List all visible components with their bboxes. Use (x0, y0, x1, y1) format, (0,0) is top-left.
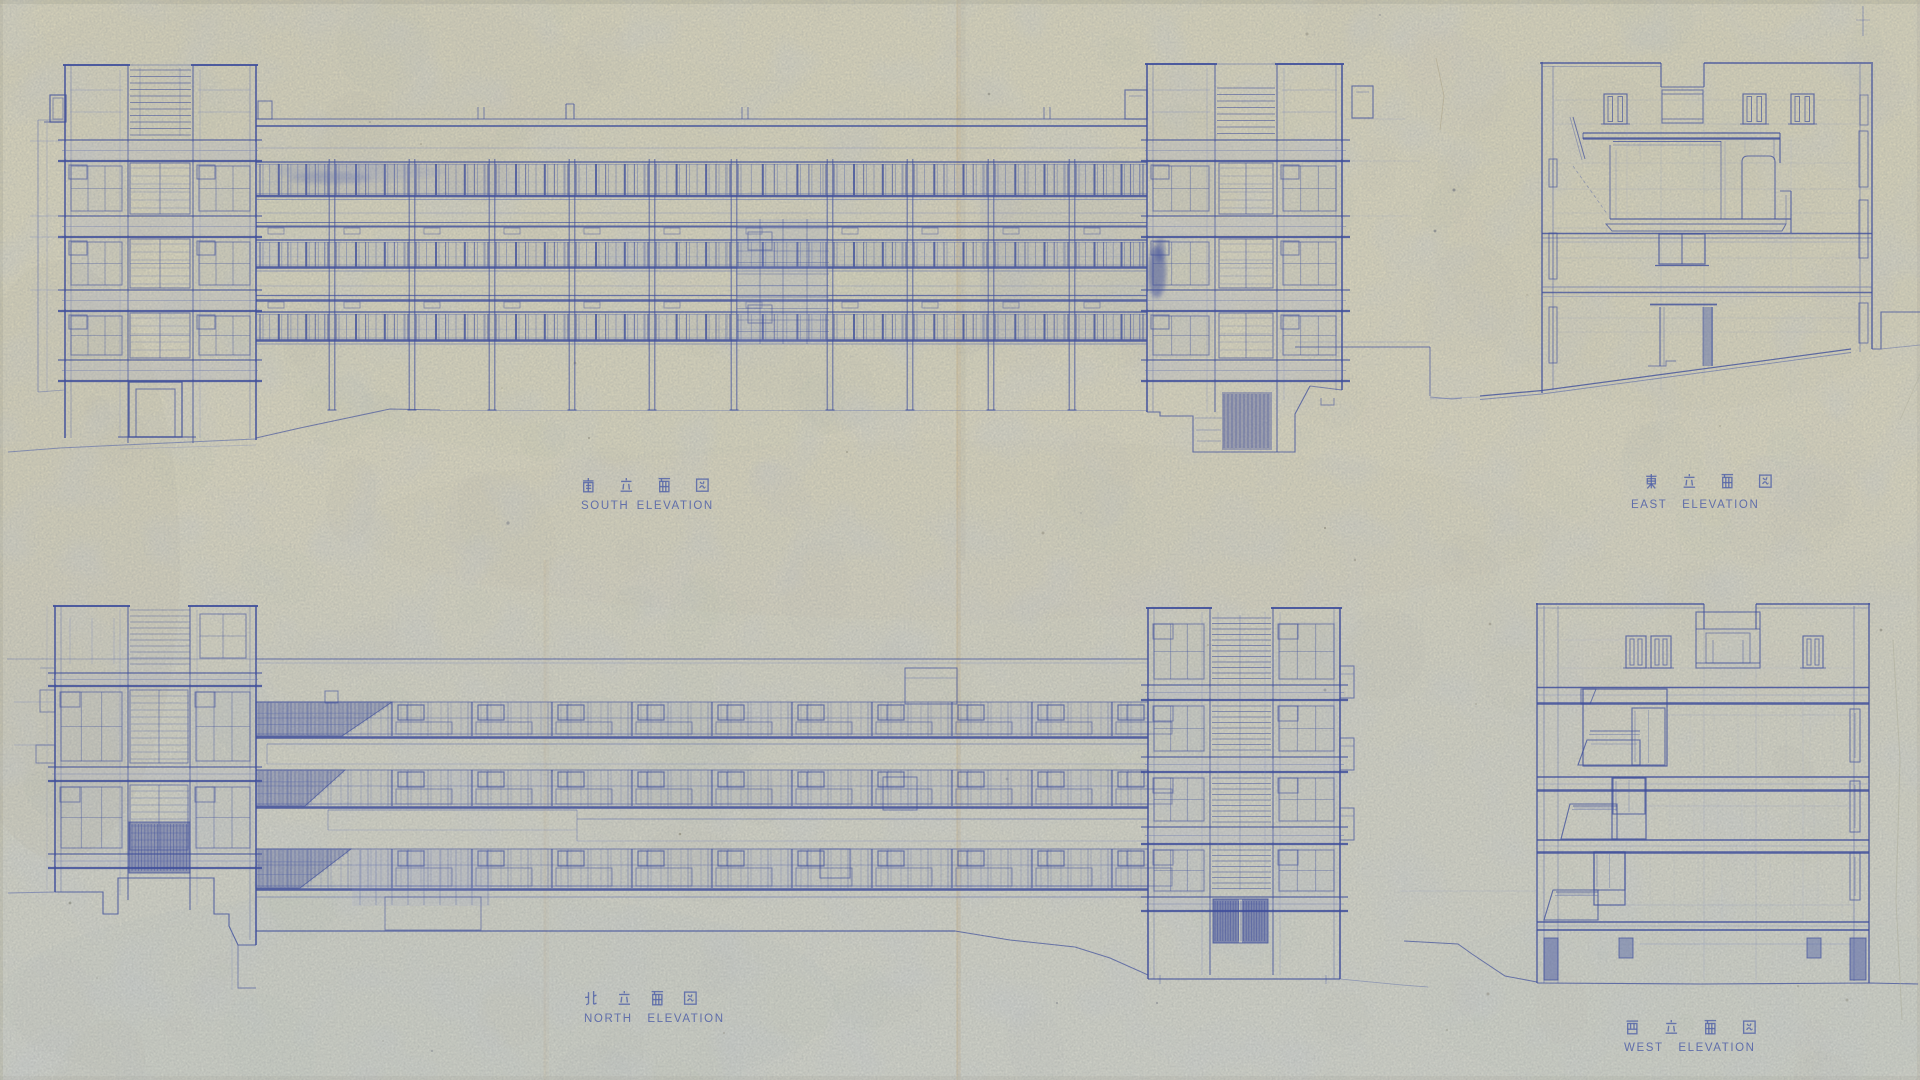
svg-text:WEST ELEVATION: WEST ELEVATION (1624, 1042, 1756, 1054)
svg-text:EAST ELEVATION: EAST ELEVATION (1631, 499, 1759, 511)
svg-text:SOUTH ELEVATION: SOUTH ELEVATION (581, 500, 714, 512)
svg-text:NORTH ELEVATION: NORTH ELEVATION (584, 1013, 725, 1025)
